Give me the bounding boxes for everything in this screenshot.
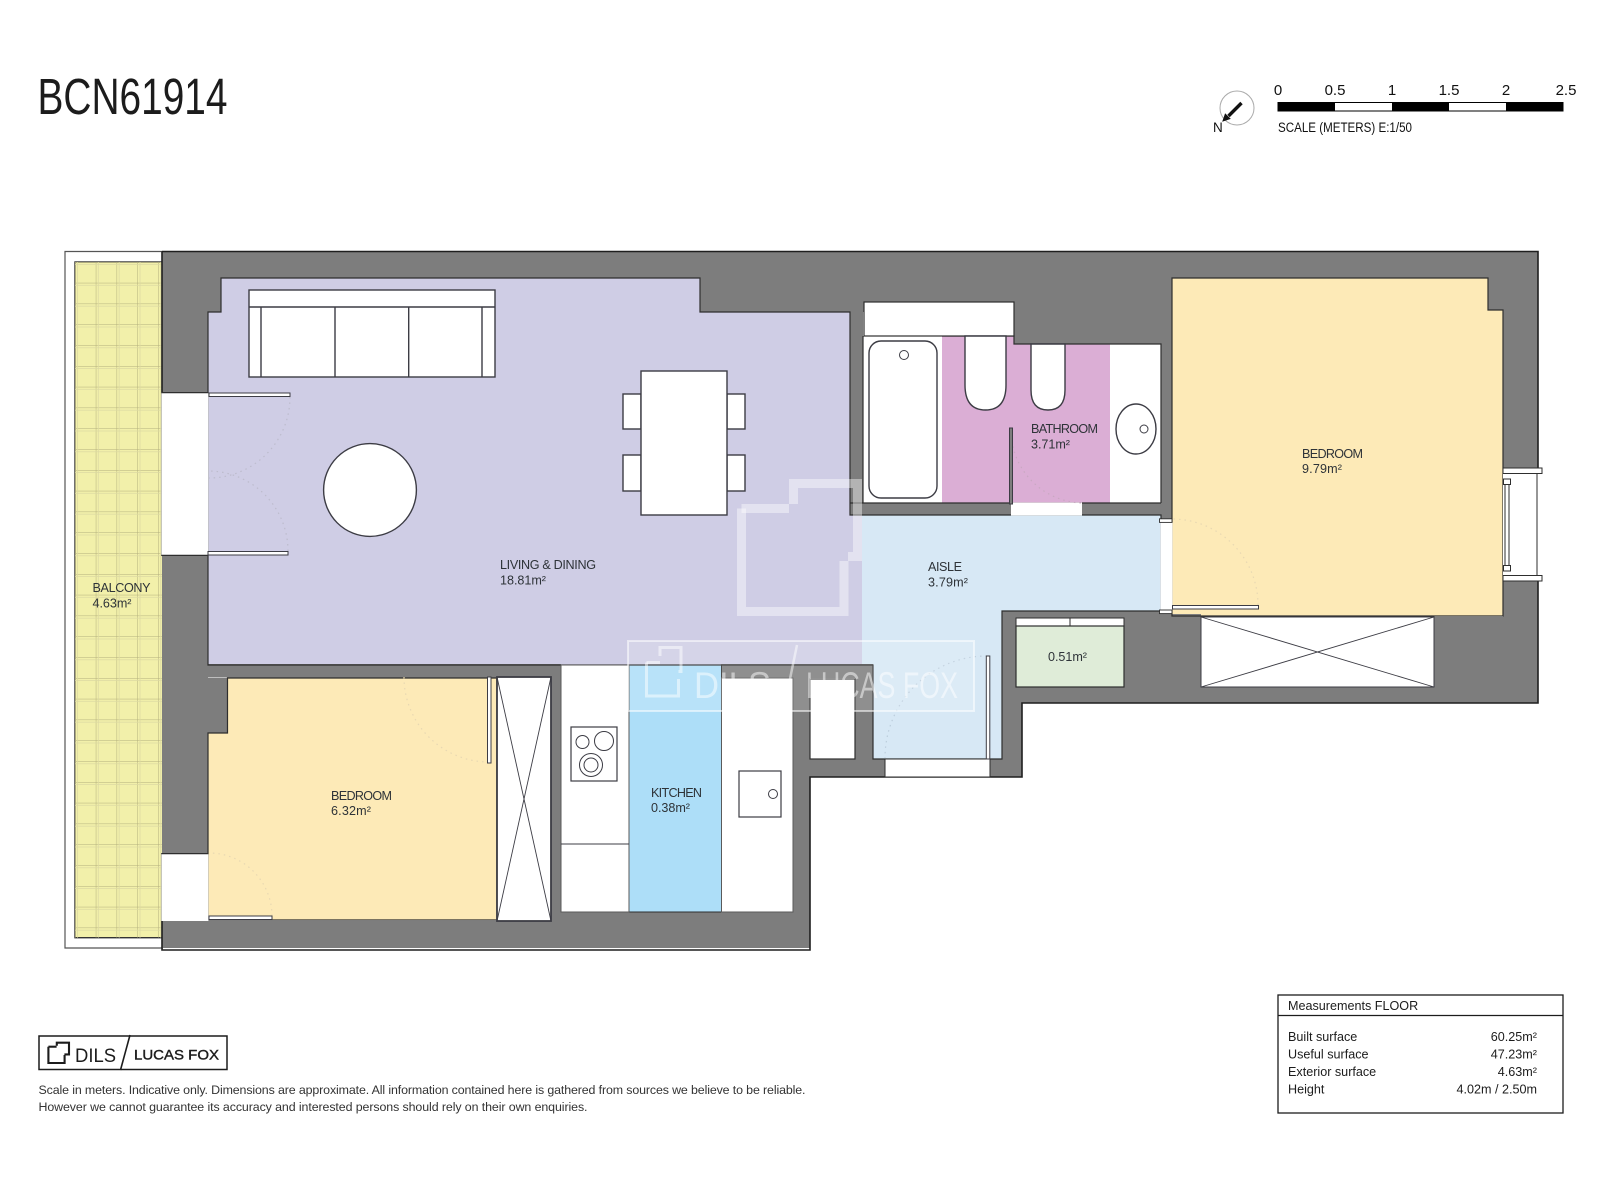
svg-text:0.51m²: 0.51m² <box>1048 650 1087 664</box>
svg-text:BATHROOM: BATHROOM <box>1031 422 1098 436</box>
svg-text:N: N <box>1213 120 1223 135</box>
svg-text:0.5: 0.5 <box>1325 82 1346 99</box>
svg-text:BCN61914: BCN61914 <box>38 68 228 125</box>
svg-text:Scale in meters. Indicative on: Scale in meters. Indicative only. Dimens… <box>39 1083 806 1097</box>
svg-text:Useful surface: Useful surface <box>1288 1048 1369 1062</box>
svg-text:However we cannot guarantee it: However we cannot guarantee its accuracy… <box>39 1100 588 1114</box>
svg-text:2.5: 2.5 <box>1556 82 1577 99</box>
svg-text:Exterior surface: Exterior surface <box>1288 1065 1376 1079</box>
svg-text:BALCONY: BALCONY <box>93 581 152 595</box>
svg-text:2: 2 <box>1502 82 1510 99</box>
svg-text:6.32m²: 6.32m² <box>331 804 371 818</box>
svg-text:1.5: 1.5 <box>1439 82 1460 99</box>
svg-text:Measurements FLOOR: Measurements FLOOR <box>1288 999 1418 1013</box>
svg-text:LUCAS FOX: LUCAS FOX <box>134 1048 219 1063</box>
svg-text:SCALE (METERS) E:1/50: SCALE (METERS) E:1/50 <box>1278 120 1412 135</box>
svg-text:Built surface: Built surface <box>1288 1030 1357 1044</box>
svg-text:LIVING & DINING: LIVING & DINING <box>500 558 596 572</box>
svg-text:0: 0 <box>1274 82 1282 99</box>
svg-text:DILS: DILS <box>75 1045 116 1067</box>
svg-text:AISLE: AISLE <box>928 560 962 574</box>
svg-text:9.79m²: 9.79m² <box>1302 462 1342 476</box>
svg-text:0.38m²: 0.38m² <box>651 801 690 815</box>
svg-text:BEDROOM: BEDROOM <box>331 789 392 803</box>
svg-text:3.71m²: 3.71m² <box>1031 438 1070 452</box>
svg-text:18.81m²: 18.81m² <box>500 574 546 588</box>
svg-text:DILS: DILS <box>694 665 771 706</box>
svg-text:BEDROOM: BEDROOM <box>1302 447 1363 461</box>
svg-text:47.23m²: 47.23m² <box>1491 1048 1537 1062</box>
svg-text:4.02m / 2.50m: 4.02m / 2.50m <box>1456 1083 1537 1097</box>
svg-text:4.63m²: 4.63m² <box>1498 1065 1537 1079</box>
svg-text:Height: Height <box>1288 1083 1325 1097</box>
svg-text:KITCHEN: KITCHEN <box>651 786 702 800</box>
svg-text:4.63m²: 4.63m² <box>93 597 132 611</box>
svg-text:LUCAS FOX: LUCAS FOX <box>806 665 958 706</box>
svg-text:3.79m²: 3.79m² <box>928 576 968 590</box>
svg-text:1: 1 <box>1388 82 1396 99</box>
svg-text:60.25m²: 60.25m² <box>1491 1030 1537 1044</box>
